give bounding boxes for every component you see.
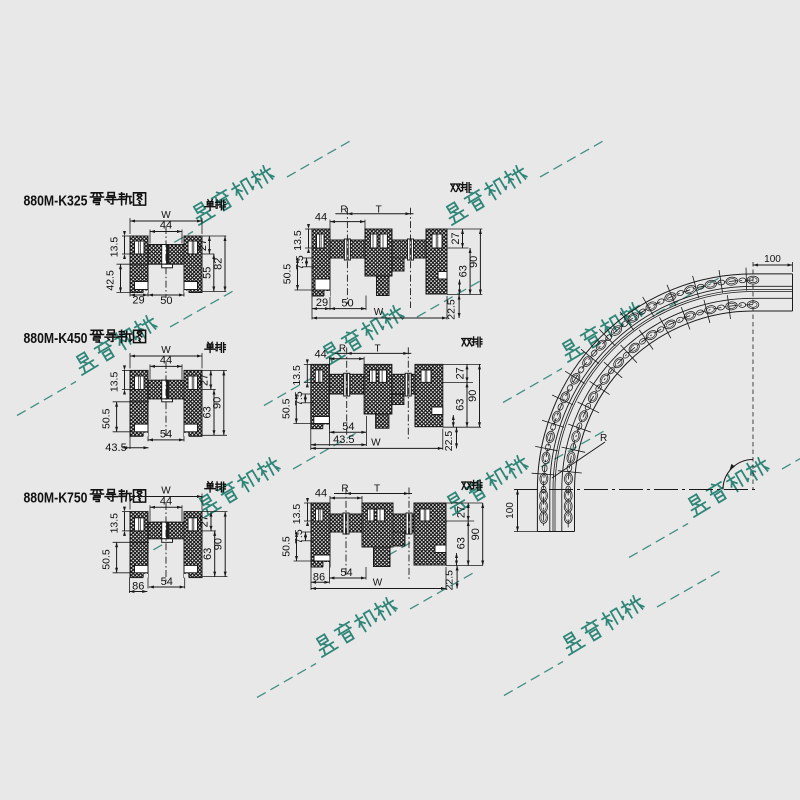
svg-text:50.5: 50.5 xyxy=(282,264,294,285)
svg-text:50: 50 xyxy=(341,297,353,309)
svg-text:44: 44 xyxy=(160,354,172,366)
svg-text:54: 54 xyxy=(342,421,354,433)
svg-text:R: R xyxy=(340,205,347,216)
svg-text:27: 27 xyxy=(450,232,462,244)
svg-text:W: W xyxy=(374,307,384,318)
svg-text:7.5: 7.5 xyxy=(293,529,305,544)
svg-text:880M-K325: 880M-K325 xyxy=(24,193,88,210)
svg-text:86: 86 xyxy=(132,581,144,593)
svg-text:55: 55 xyxy=(201,267,213,279)
svg-text:90: 90 xyxy=(213,538,225,550)
svg-text:63: 63 xyxy=(455,399,467,411)
svg-text:29: 29 xyxy=(132,295,144,307)
svg-text:R: R xyxy=(339,344,346,355)
svg-text:W: W xyxy=(371,437,381,448)
svg-text:13.5: 13.5 xyxy=(109,372,121,393)
svg-text:50.5: 50.5 xyxy=(101,408,113,429)
svg-text:27: 27 xyxy=(198,374,210,386)
svg-text:50.5: 50.5 xyxy=(281,536,293,557)
svg-text:27: 27 xyxy=(197,239,209,251)
svg-text:43.5: 43.5 xyxy=(333,434,354,446)
svg-text:7.5: 7.5 xyxy=(294,255,306,270)
svg-text:44: 44 xyxy=(314,348,326,360)
svg-text:90: 90 xyxy=(468,256,480,268)
svg-text:27: 27 xyxy=(456,506,468,518)
svg-text:82: 82 xyxy=(213,258,225,270)
svg-text:880M-K750: 880M-K750 xyxy=(24,490,88,507)
svg-text:22.5: 22.5 xyxy=(443,431,455,452)
svg-text:44: 44 xyxy=(315,488,327,500)
svg-text:T: T xyxy=(374,344,380,355)
svg-text:W: W xyxy=(373,578,383,589)
svg-text:13.5: 13.5 xyxy=(109,237,121,258)
svg-text:27: 27 xyxy=(455,367,467,379)
svg-text:13.5: 13.5 xyxy=(292,230,304,251)
svg-text:100: 100 xyxy=(764,254,781,265)
svg-text:R: R xyxy=(600,433,607,444)
svg-text:44: 44 xyxy=(160,495,172,507)
svg-text:90: 90 xyxy=(211,397,223,409)
svg-text:54: 54 xyxy=(160,428,172,440)
svg-text:54: 54 xyxy=(340,567,352,579)
svg-text:43.5: 43.5 xyxy=(105,442,126,454)
svg-text:13.5: 13.5 xyxy=(109,513,121,534)
svg-text:44: 44 xyxy=(160,220,172,232)
svg-text:27: 27 xyxy=(199,515,211,527)
svg-text:90: 90 xyxy=(467,390,479,402)
svg-text:T: T xyxy=(376,205,382,216)
svg-text:63: 63 xyxy=(456,537,468,549)
svg-text:R: R xyxy=(341,484,348,495)
svg-text:50.5: 50.5 xyxy=(280,398,292,419)
svg-text:50.5: 50.5 xyxy=(101,549,113,570)
svg-text:29: 29 xyxy=(316,297,328,309)
svg-text:44: 44 xyxy=(315,211,327,223)
svg-text:880M-K450: 880M-K450 xyxy=(24,330,88,347)
svg-text:T: T xyxy=(374,484,380,495)
svg-text:90: 90 xyxy=(470,528,482,540)
svg-text:54: 54 xyxy=(161,576,173,588)
svg-text:50: 50 xyxy=(160,295,172,307)
svg-text:42.5: 42.5 xyxy=(105,270,117,291)
svg-text:22.5: 22.5 xyxy=(444,570,456,591)
svg-text:100: 100 xyxy=(505,502,516,519)
svg-text:13.5: 13.5 xyxy=(291,365,303,386)
svg-text:13.5: 13.5 xyxy=(291,504,303,525)
svg-text:86: 86 xyxy=(313,572,325,584)
svg-text:7.5: 7.5 xyxy=(293,391,305,406)
